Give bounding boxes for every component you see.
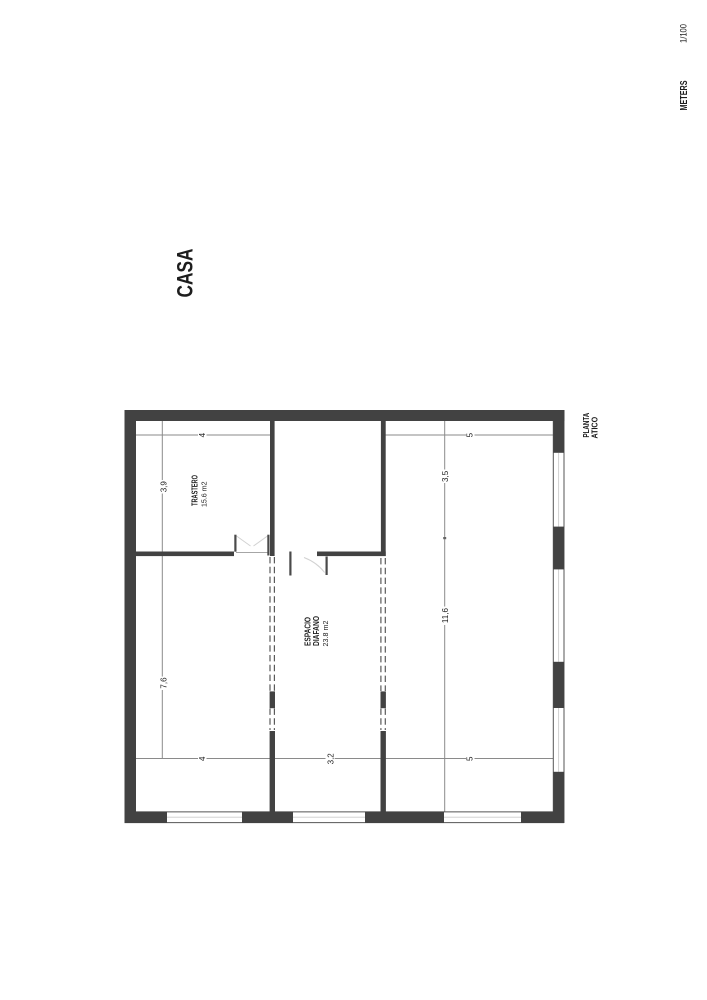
svg-text:5: 5	[466, 756, 475, 761]
svg-text:METERS: METERS	[679, 80, 690, 110]
svg-text:7,6: 7,6	[159, 677, 168, 689]
svg-text:11,6: 11,6	[441, 608, 450, 624]
svg-text:ATICO: ATICO	[591, 417, 600, 439]
svg-text:PLANTA: PLANTA	[582, 413, 591, 438]
svg-text:DIAFANO: DIAFANO	[312, 616, 321, 646]
svg-text:5: 5	[466, 432, 475, 437]
svg-text:CASA: CASA	[173, 248, 198, 297]
svg-text:23.8 m2: 23.8 m2	[321, 621, 330, 647]
svg-text:4: 4	[198, 756, 207, 761]
svg-text:4: 4	[198, 432, 207, 437]
svg-text:3,5: 3,5	[441, 470, 450, 482]
svg-text:1/100: 1/100	[679, 24, 689, 43]
svg-text:TRASTERO: TRASTERO	[190, 475, 199, 506]
svg-text:15.6 m2: 15.6 m2	[200, 482, 209, 508]
svg-text:3,2: 3,2	[326, 753, 335, 765]
svg-text:3,9: 3,9	[159, 481, 168, 493]
